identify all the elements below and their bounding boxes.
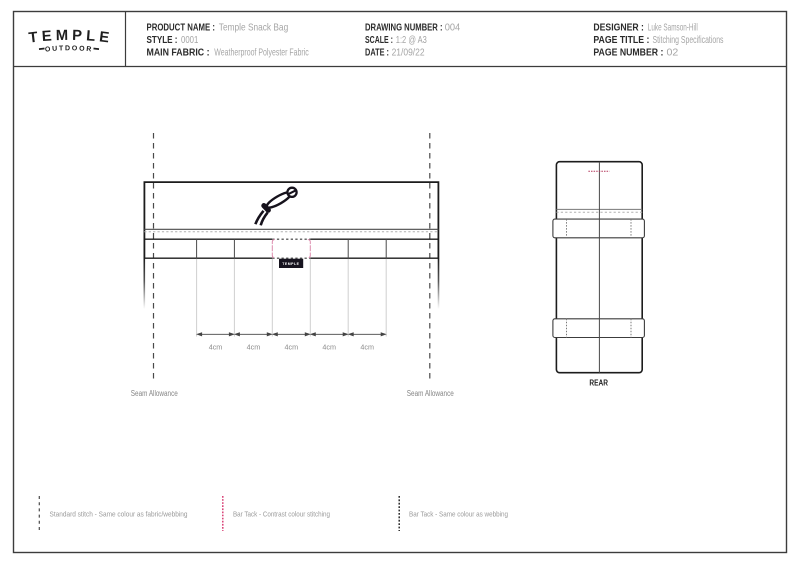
svg-text:DRAWING NUMBER :: DRAWING NUMBER : <box>365 22 443 33</box>
svg-text:STYLE :: STYLE : <box>147 35 178 46</box>
svg-text:1:2 @ A3: 1:2 @ A3 <box>396 35 427 46</box>
svg-text:02: 02 <box>667 47 679 58</box>
svg-text:21/09/22: 21/09/22 <box>392 47 425 58</box>
svg-text:TEMPLE: TEMPLE <box>282 262 300 266</box>
svg-text:4cm: 4cm <box>322 343 336 352</box>
svg-text:DESIGNER :: DESIGNER : <box>593 22 644 33</box>
svg-text:Stitching Specifications: Stitching Specifications <box>653 35 724 46</box>
svg-text:Weatherproof Polyester Fabric: Weatherproof Polyester Fabric <box>214 47 308 58</box>
svg-text:Seam Allowance: Seam Allowance <box>407 389 454 398</box>
svg-text:Temple Snack Bag: Temple Snack Bag <box>219 22 289 33</box>
svg-text:Bar Tack - Contrast colour sti: Bar Tack - Contrast colour stitching <box>233 510 330 519</box>
svg-text:Luke Samson-Hill: Luke Samson-Hill <box>648 22 698 33</box>
svg-text:Standard stitch - Same colour: Standard stitch - Same colour as fabric/… <box>50 510 188 519</box>
svg-text:REAR: REAR <box>589 379 608 388</box>
svg-text:PAGE NUMBER :: PAGE NUMBER : <box>593 47 663 58</box>
svg-text:PAGE TITLE :: PAGE TITLE : <box>593 35 649 46</box>
svg-text:SCALE :: SCALE : <box>365 35 393 46</box>
svg-text:Seam Allowance: Seam Allowance <box>131 389 178 398</box>
svg-text:0001: 0001 <box>181 35 198 46</box>
svg-text:4cm: 4cm <box>209 343 223 352</box>
svg-text:OUTDOOR: OUTDOOR <box>45 45 94 53</box>
svg-text:TEMPLE: TEMPLE <box>28 28 114 47</box>
svg-text:4cm: 4cm <box>360 343 374 352</box>
svg-text:DATE :: DATE : <box>365 47 389 58</box>
svg-text:4cm: 4cm <box>285 343 299 352</box>
svg-text:4cm: 4cm <box>247 343 261 352</box>
svg-text:004: 004 <box>445 22 461 33</box>
svg-text:PRODUCT NAME :: PRODUCT NAME : <box>147 22 216 33</box>
svg-text:MAIN FABRIC :: MAIN FABRIC : <box>147 47 210 58</box>
svg-text:Bar Tack - Same colour as webb: Bar Tack - Same colour as webbing <box>409 510 508 519</box>
